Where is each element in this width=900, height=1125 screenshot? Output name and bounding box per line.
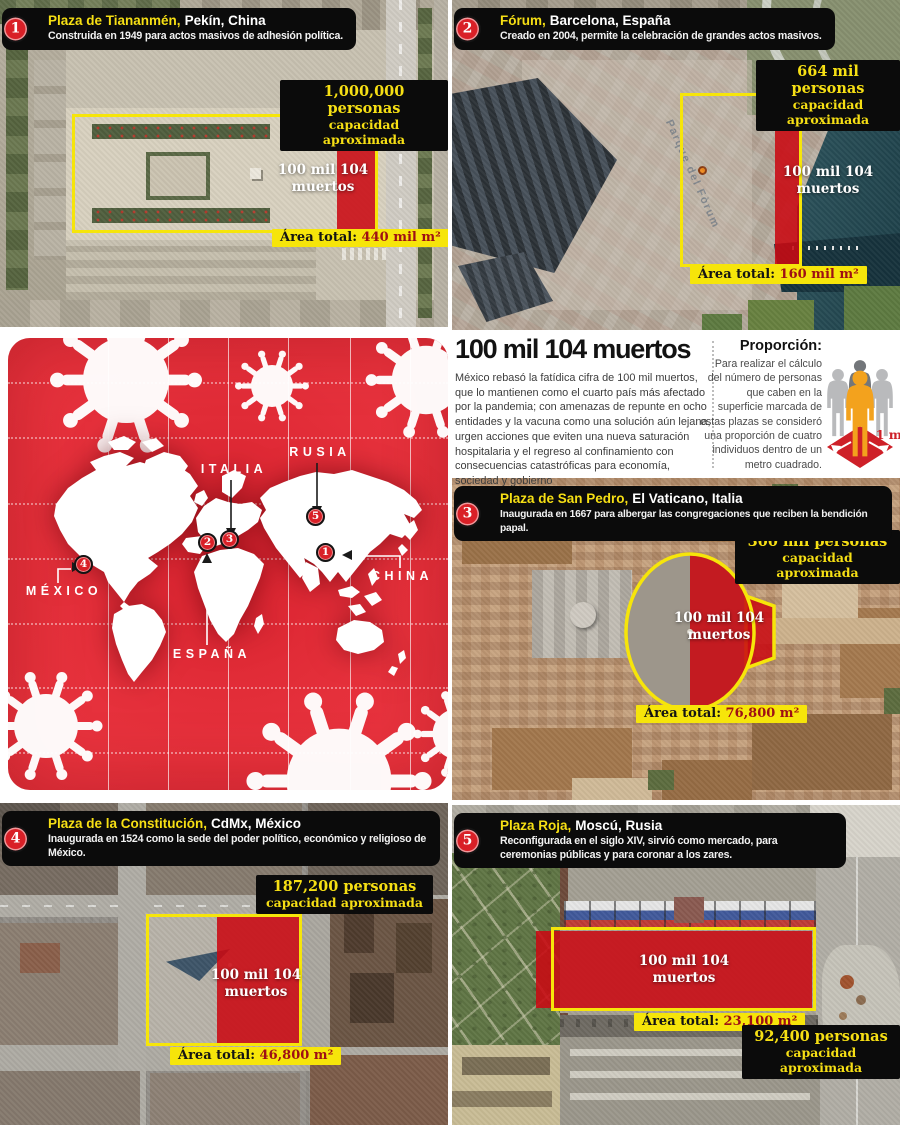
infographic-canvas: 100 mil 104 muertos 1,000,000 personas c… xyxy=(0,0,900,1125)
headline: 100 mil 104 muertos xyxy=(455,334,713,364)
capacity-badge: 1,000,000 personas capacidad aproximada xyxy=(280,80,448,151)
panel-number-badge: 1 xyxy=(2,15,29,42)
proportion-block: Proporción: Para realizar el cálculo del… xyxy=(700,338,822,472)
panel-number-badge: 3 xyxy=(454,500,481,527)
panel-number-badge: 4 xyxy=(2,825,29,852)
panel-description: Reconfigurada en el siglo XIV, sirvió co… xyxy=(500,835,833,862)
country-label: ITALIA xyxy=(201,462,267,476)
area-badge: Área total: 440 mil m² xyxy=(272,229,448,247)
area-badge: Área total: 46,800 m² xyxy=(170,1047,341,1065)
proportion-figure: 1 m xyxy=(821,341,900,469)
capacity-badge: 92,400 personas capacidad aproximada xyxy=(742,1025,900,1079)
capacity-badge: 664 mil personas capacidad aproximada xyxy=(756,60,900,131)
country-label: CHINA xyxy=(371,569,433,583)
lead-body: México rebasó la fatídica cifra de 100 m… xyxy=(455,371,713,489)
proportion-text: Para realizar el cálculo del número de p… xyxy=(700,357,822,472)
map-marker: 5 xyxy=(306,507,325,526)
panel-header-forum: 2 Fórum,Barcelona, España Creado en 2004… xyxy=(454,8,835,50)
deaths-label: 100 mil 104 muertos xyxy=(634,953,734,986)
proportion-title: Proporción: xyxy=(700,338,822,354)
panel-description: Inaugurada en 1667 para albergar las con… xyxy=(500,508,879,535)
deaths-label: 100 mil 104 muertos xyxy=(778,164,878,197)
deaths-label: 100 mil 104 muertos xyxy=(206,967,306,1000)
panel-header-tiananmen: 1 Plaza de Tiananmén,Pekín, China Constr… xyxy=(2,8,356,50)
area-badge: Área total: 76,800 m² xyxy=(636,705,807,723)
panel-title: Fórum,Barcelona, España xyxy=(500,13,822,29)
panel-description: Creado en 2004, permite la celebración d… xyxy=(500,30,822,44)
world-map-panel: 4 2 3 5 1 MÉXICO ESPAÑA ITALIA RUSIA CHI… xyxy=(8,338,448,790)
panel-number-badge: 5 xyxy=(454,827,481,854)
panel-title: Plaza de San Pedro,El Vaticano, Italia xyxy=(500,491,879,507)
map-marker: 3 xyxy=(220,530,239,549)
panel-zocalo: 100 mil 104 muertos 187,200 personas cap… xyxy=(0,803,448,1125)
panel-description: Inaugurada en 1524 como la sede del pode… xyxy=(48,833,427,860)
panel-tiananmen: 100 mil 104 muertos 1,000,000 personas c… xyxy=(0,0,448,327)
map-marker: 2 xyxy=(198,533,217,552)
panel-title: Plaza de la Constitución,CdMx, México xyxy=(48,816,427,832)
country-label: ESPAÑA xyxy=(173,647,251,661)
panel-number-badge: 2 xyxy=(454,15,481,42)
panel-header-plaza-roja: 5 Plaza Roja,Moscú, Rusia Reconfigurada … xyxy=(454,813,846,868)
deaths-label: 100 mil 104 muertos xyxy=(268,162,378,195)
panel-san-pedro: 100 mil 104 muertos 300 mil personas cap… xyxy=(452,478,900,800)
panel-title: Plaza de Tiananmén,Pekín, China xyxy=(48,13,343,29)
country-label: MÉXICO xyxy=(26,584,102,598)
panel-header-zocalo: 4 Plaza de la Constitución,CdMx, México … xyxy=(2,811,440,866)
capacity-badge: 187,200 personas capacidad aproximada xyxy=(256,875,433,914)
people-per-square-meter-icon xyxy=(821,341,900,469)
map-marker: 4 xyxy=(74,555,93,574)
panel-forum-barcelona: Parque del Fòrum 100 mil 104 muertos 664… xyxy=(452,0,900,330)
scale-label: 1 m xyxy=(876,427,900,442)
panel-plaza-roja: 100 mil 104 muertos Área total: 23,100 m… xyxy=(452,805,900,1125)
deaths-label: 100 mil 104 muertos xyxy=(664,610,774,643)
lead-block: 100 mil 104 muertos México rebasó la fat… xyxy=(455,334,713,489)
panel-title: Plaza Roja,Moscú, Rusia xyxy=(500,818,833,834)
area-badge: Área total: 160 mil m² xyxy=(690,266,867,284)
map-marker: 1 xyxy=(316,543,335,562)
panel-header-san-pedro: 3 Plaza de San Pedro,El Vaticano, Italia… xyxy=(454,486,892,541)
panel-description: Construida en 1949 para actos masivos de… xyxy=(48,30,343,44)
country-label: RUSIA xyxy=(289,445,350,459)
